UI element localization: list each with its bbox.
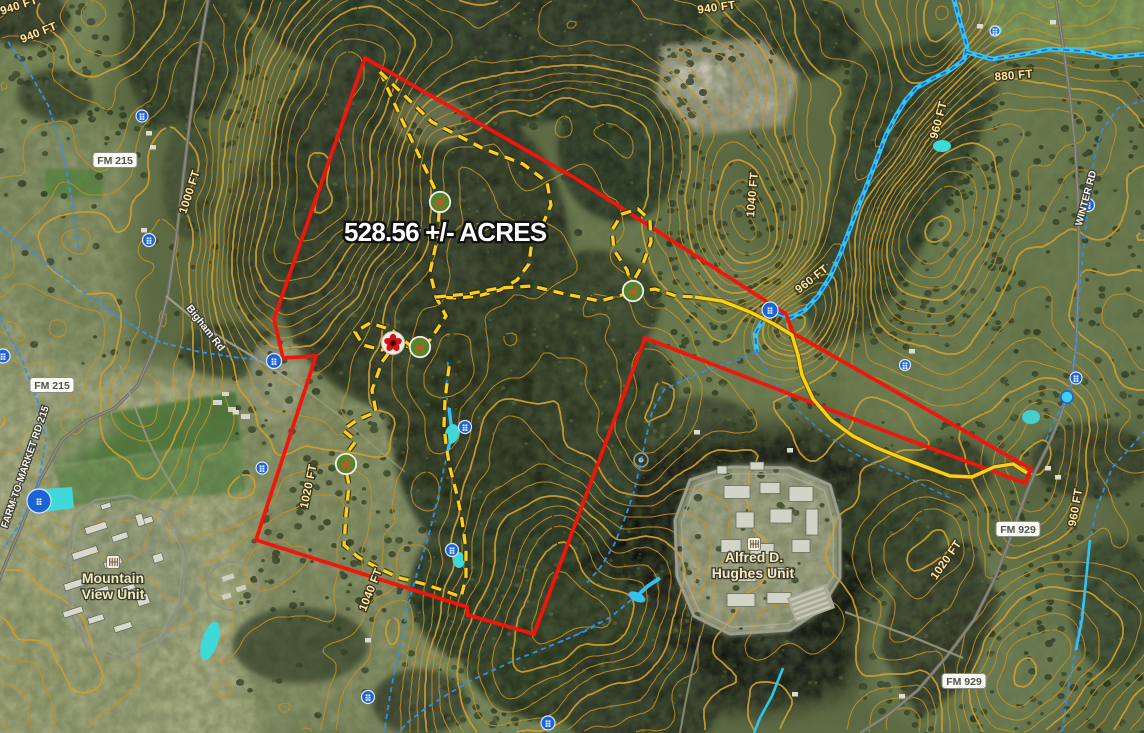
svg-text:FM 929: FM 929 [946, 676, 982, 688]
svg-text:Mountain: Mountain [82, 570, 144, 586]
svg-text:FM 929: FM 929 [1000, 524, 1036, 536]
svg-text:FM 215: FM 215 [34, 380, 70, 392]
svg-text:FM 215: FM 215 [97, 155, 133, 167]
svg-text:View Unit: View Unit [82, 586, 145, 602]
svg-text:Hughes Unit: Hughes Unit [712, 565, 795, 581]
svg-text:528.56 +/- ACRES: 528.56 +/- ACRES [344, 217, 547, 247]
svg-text:Alfred D.: Alfred D. [725, 549, 783, 565]
